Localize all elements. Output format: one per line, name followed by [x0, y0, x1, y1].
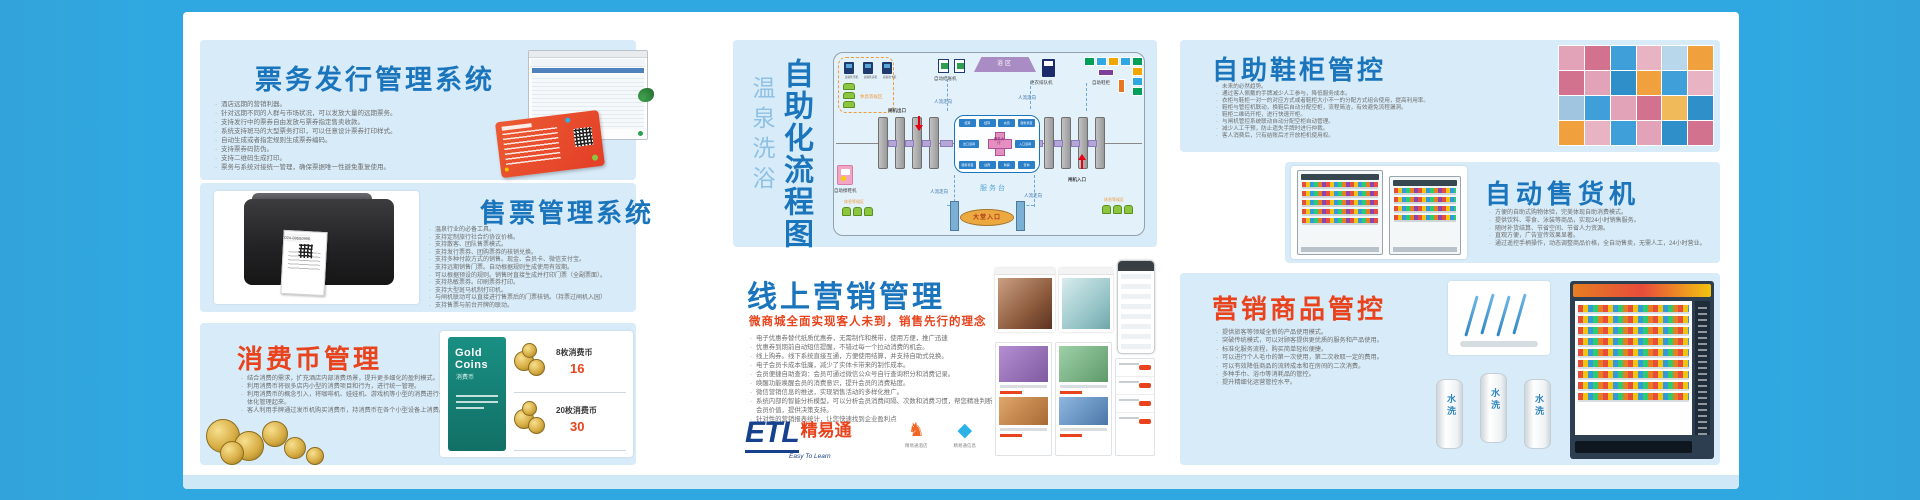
offer-price: 16 [570, 361, 584, 376]
screenshot-table-header [532, 68, 644, 73]
people-flow-label: 人流走向 [1024, 193, 1042, 199]
bullet: 突破传统模式，可以对顾客提供更优质的服务和产品使用。 [1215, 337, 1437, 345]
app-product-card [1055, 342, 1112, 456]
waiting-seats [843, 83, 855, 110]
printer-photo: 024-88600996 [234, 191, 404, 304]
plant-decoration [638, 88, 654, 102]
flow-main-title: 自助化流程图 [773, 58, 817, 250]
app-screenshot-spa [1059, 268, 1113, 332]
service-box: 入口道闸 [1015, 140, 1035, 148]
self-service-machines: 自助售币机 自助售货机 自助领卡机 [844, 62, 897, 79]
bullet: 酒店远期的营销利器。 [214, 100, 514, 109]
locker-tile [1688, 46, 1713, 70]
bullet: 线上购券。线下系统直接互通，方便使用结算，并支持自助式兑换。 [749, 352, 993, 361]
queue-machine-label: 更衣排队机 [1030, 80, 1053, 86]
panel-merch-bullets: 提供旅客等领域全新的产品使用模式。突破传统模式，可以对顾客提供更优质的服务和产品… [1215, 329, 1437, 388]
service-box: 查询 [1018, 161, 1035, 169]
app-screenshot-massage [995, 268, 1055, 332]
bullet: 与闸机管控系统联动自动分配空柜自动管理。 [1215, 119, 1545, 126]
towel-rolls-photo: 水洗 水洗 水洗 [1432, 363, 1564, 461]
qr-code [571, 125, 596, 150]
bullet: 客人利用手牌通过发币机购买消费币，持消费币在各个小型设备上消费。 [240, 407, 445, 415]
product-photo [1059, 397, 1108, 425]
bullet: 通过客人佩戴的手牌减少人工参与，降低服务成本。 [1215, 91, 1545, 98]
entrance-pillar [1016, 201, 1025, 231]
locker-tile [1688, 71, 1713, 95]
service-box: 结算 [959, 119, 976, 127]
locker-tile [1559, 96, 1584, 120]
locker-tile [1637, 71, 1662, 95]
bullet: 鞋柜与管控机联动，换鞋后自动分配空柜，流程简洁，有效避免流程漏洞。 [1215, 105, 1545, 112]
vending-machine [1297, 170, 1383, 255]
locker-tile [1611, 46, 1636, 70]
vending-window [1575, 301, 1692, 435]
bullet: 系统内部的智能分析模型，可以分析会员消费间隔、次数和消费习惯，帮您精准判断会员价… [749, 397, 993, 415]
printer-photo-card: 024-88600996 [214, 191, 419, 304]
merch-vending-photo [1570, 281, 1714, 459]
bullet: 利用消费币的概念引入，将咖啡机、娃娃机、游戏机等小型的消费进行一体化管理起来。 [240, 391, 445, 407]
vending-pickup-slot [1575, 441, 1692, 453]
etl-logo-cn: 精易通 [801, 421, 852, 440]
bullet: 提供饮料、零食、泳装等商品，实现24小时销售服务。 [1488, 218, 1710, 226]
bullet: 利用消费币将很多店内小型的消费项目和行为，进行统一管理。 [240, 383, 445, 391]
bullet: 票务与系统对接统一管理，确保票据唯一性避免重复使用。 [214, 163, 514, 172]
order-row [1116, 359, 1154, 377]
panel-marketing-bullets: 电子优惠券替代纸质优惠券，无需制作和携带，使用方便，推广迅速优惠券到期前自动短信… [749, 334, 993, 424]
product-icon: ♞ [905, 420, 928, 442]
bullet: 结合消费的需求，扩充酒店内部消费场景，提升更多细化的盈利模式。 [240, 375, 445, 383]
poster-canvas: 票务发行管理系统 酒店远期的营销利器。针对远期不同的人群与市场状况，可以发放大量… [183, 12, 1739, 489]
ticket-text-lines [502, 127, 561, 167]
service-box: 购票 [998, 161, 1015, 169]
service-box: 出口道闸 [959, 140, 979, 148]
panel-marketing-title: 线上营销管理 [747, 272, 945, 316]
poster: 票务发行管理系统 酒店远期的营销利器。针对远期不同的人群与市场状况，可以发放大量… [0, 0, 1920, 500]
locker-tile [1585, 121, 1610, 145]
locker-tile [1611, 96, 1636, 120]
panel-vending-bullets: 方便的自助式购物体验，完美体现自助消费模式。提供饮料、零食、泳装等商品，实现24… [1488, 210, 1710, 249]
towel-roll: 水洗 [1524, 379, 1551, 449]
offer-label: 20枚消费币 [556, 405, 597, 416]
toothbrush [1480, 293, 1494, 334]
product-photo [1059, 346, 1108, 382]
bullet: 自动生成或者指定规则生成票券编码。 [214, 136, 514, 145]
panel-vending: 自动售货机 方便的自助式购物体验，完美体现自助消费模式。提供饮料、零食、泳装等商… [1285, 162, 1720, 263]
panel-ticketing-bullets: 酒店远期的营销利器。针对远期不同的人群与市场状况，可以发放大量的远期票务。支持发… [214, 100, 514, 172]
bullet: 减少人工干预，防止遗失手牌时进行仲裁。 [1215, 126, 1545, 133]
bullet: 支持多种付款方式的销售。现金、会员卡、微信支付宝。 [428, 257, 633, 265]
locker-tile [1611, 71, 1636, 95]
service-row-bottom: 服务项目迎宾购票查询 [959, 161, 1035, 169]
lobby-entrance: 大堂入口 [960, 209, 1014, 226]
etl-product: ♞ 精易通酒店 [905, 420, 928, 449]
bullet: 电子优惠券替代纸质优惠券，无需制作和携带，使用方便，推广迅速 [749, 334, 993, 343]
bullet: 微信营销信息的推送，实现销售活动的多样化推广。 [749, 388, 993, 397]
waiting-seats [842, 207, 873, 218]
screenshot-titlebar [529, 51, 647, 58]
vending-machine [1389, 176, 1461, 255]
shoe-shine-label: 自助擦鞋机 [834, 188, 857, 194]
bath-zone: 浴区 [974, 57, 1036, 72]
machine-icon [882, 62, 892, 74]
printer-ticket-phone: 024-88600996 [284, 235, 310, 241]
bullet: 通过遥控手柄操作，动态调整商品价格，全自动售卖，无需人工，24小时营业。 [1488, 241, 1710, 249]
etl-product: ◆ 精易通信息 [954, 420, 977, 449]
locker-tile [1585, 46, 1610, 70]
massage-photo [998, 278, 1052, 329]
towel-roll: 水洗 [1436, 379, 1463, 449]
phone-mockup [1117, 260, 1155, 354]
queue-machine-icon [1042, 59, 1055, 77]
service-row-top: 结算结算充值服务项目 [959, 119, 1035, 127]
gate-entry-arrow [1081, 155, 1083, 169]
locker-tile [1662, 71, 1687, 95]
locker-tile [1688, 96, 1713, 120]
bullet: 标准化服务流程，购买简单轻松便捷。 [1215, 346, 1437, 354]
product-photo [999, 346, 1048, 382]
bullet: 支持票券码防伪。 [214, 145, 514, 154]
service-desk-label: 服务台 [980, 183, 1007, 193]
locker-tile [1559, 121, 1584, 145]
bullet: 温泉行业的必备工具。 [428, 227, 633, 235]
locker-photo [1558, 45, 1714, 146]
service-box: 服务项目 [959, 161, 976, 169]
locker-tile [1688, 121, 1713, 145]
gate-exit-label: 闸机出口 [888, 108, 906, 114]
bullet: 支持热敏票券。印刷票券打印。 [428, 280, 633, 288]
panel-shoe-title: 自助鞋柜管控 [1212, 50, 1386, 87]
self-service-machine: 自助领卡机 [882, 62, 897, 79]
service-hall-box: 结算结算充值服务项目 出口道闸 入口道闸 服务项目迎宾购票查询 服务大厅 [954, 115, 1040, 173]
people-flow-label: 人流走向 [934, 99, 952, 105]
toothbrush [1512, 293, 1526, 334]
waiting-area-label: 休息等候区 [844, 199, 864, 205]
panel-marketing-subtitle: 微商城全面实现客人未到，销售先行的理念 [749, 313, 987, 329]
locker-tile [1662, 96, 1687, 120]
shoe-shine-machine-icon [837, 165, 853, 185]
panel-shoe-cabinet: 自助鞋柜管控 未来的必然趋势。通过客人佩戴的手牌减少人工参与，降低服务成本。衣柜… [1180, 40, 1720, 152]
phone-content [1121, 274, 1151, 349]
bullet: 客人消费后，只有结账后才开放柜机使用权。 [1215, 133, 1545, 140]
locker-tile [1611, 121, 1636, 145]
price-bar [1060, 391, 1082, 394]
service-box: 结算 [979, 119, 996, 127]
locker-tile [1662, 121, 1687, 145]
locker-tile [1585, 96, 1610, 120]
gate-entry-label: 闸机入口 [1068, 177, 1086, 183]
panel-ticket-sales-bullets: 温泉行业的必备工具。支持定制旅行社合约协议价格。支持散客、团队售票模式。支持发行… [428, 227, 633, 311]
order-row [1116, 413, 1154, 431]
etl-logo-text: ETL [745, 416, 799, 453]
bullet: 唤醒功能唤醒会员的消费意识，提升会员的消费粘度。 [749, 379, 993, 388]
canvas-bottom-strip [183, 475, 1739, 489]
gold-card-brand: Gold Coins [455, 347, 506, 371]
waiting-seats [1102, 205, 1133, 216]
panel-shoe-bullets: 未来的必然趋势。通过客人佩戴的手牌减少人工参与，降低服务成本。衣柜与鞋柜一对一的… [1215, 84, 1545, 140]
shoe-lockers-label: 自助鞋柜 [1092, 80, 1110, 86]
coin-offers: 8枚消费币 16 20枚消费币 30 [512, 335, 628, 451]
locker-tile [1637, 121, 1662, 145]
entrance-pillar [950, 201, 959, 231]
panel-merch: 营销商品管控 提供旅客等领域全新的产品使用模式。突破传统模式，可以对顾客提供更优… [1180, 273, 1720, 465]
product-label: 精易通信息 [954, 443, 977, 449]
service-box: 服务项目 [1018, 119, 1035, 127]
offer-label: 8枚消费币 [556, 347, 592, 358]
bullet: 支持散客、团队售票模式。 [428, 242, 633, 250]
checkout-machine-icon [938, 59, 949, 73]
bullet: 方便的自助式购物体验，完美体现自助消费模式。 [1488, 210, 1710, 218]
order-row [1116, 377, 1154, 395]
panel-coins: 消费币管理 结合消费的需求，扩充酒店内部消费场景，提升更多细化的盈利模式。利用消… [200, 323, 636, 465]
people-flow-label: 人流走向 [930, 189, 948, 195]
panel-coins-title: 消费币管理 [237, 339, 382, 376]
phone-header [1118, 261, 1154, 271]
panel-ticketing-title: 票务发行管理系统 [255, 58, 495, 97]
bullet: 与闸机联动可以直接进行售票后的门票核销。（持票过闸机入园） [428, 295, 633, 303]
screenshot-toolbar [531, 59, 645, 67]
locker-tile [1559, 71, 1584, 95]
vending-photo-card [1291, 166, 1467, 259]
service-box: 充值 [998, 119, 1015, 127]
order-row [1116, 395, 1154, 413]
bullet: 可以有效降低商品的流转成本和在房间的二次消费。 [1215, 363, 1437, 371]
checkout-machines [938, 59, 965, 73]
kit-tray [1460, 341, 1538, 347]
toothbrush [1496, 295, 1510, 336]
checkout-machine-label: 自动结账机 [934, 76, 957, 82]
ticket-card [495, 110, 605, 178]
panel-flow-diagram: 温泉洗浴 自助化流程图 自助售币机 自助售货机 [733, 40, 1157, 247]
bullet: 支持远期销售门票。自动根据规则生成使用有效期。 [428, 265, 633, 273]
flow-diagram: 自助售币机 自助售货机 自助领卡机 [833, 52, 1145, 236]
bullet: 支持售票与前台开牌的联动。 [428, 303, 633, 311]
self-service-machine: 自助售货机 [863, 62, 878, 79]
bullet: 可以进行个人毛巾的第一次使用，第二次收取一定的费用。 [1215, 354, 1437, 362]
gate-exit-arrow [918, 116, 920, 130]
coin-offer-row: 8枚消费币 16 [512, 335, 628, 393]
locker-tile [1637, 46, 1662, 70]
spa-photo [1062, 278, 1110, 329]
gate-pillar [1044, 117, 1054, 169]
waiting-area-box: 自助售币机 自助售货机 自助领卡机 [838, 57, 894, 113]
panel-ticket-sales: 024-88600996 售票管理系统 温泉行业的必备工具。支持定制旅行社合约协… [200, 183, 636, 312]
panel-merch-title: 营销商品管控 [1212, 289, 1386, 326]
price-bar [1060, 434, 1082, 437]
etl-logo: ETL精易通 Easy To Learn [745, 416, 852, 460]
vending-control-panel [1695, 301, 1710, 435]
panel-marketing: 线上营销管理 微商城全面实现客人未到，销售先行的理念 电子优惠券替代纸质优惠券，… [733, 258, 1157, 465]
gate-pillar [878, 117, 888, 169]
price-bar [1000, 434, 1022, 437]
panel-ticket-sales-title: 售票管理系统 [480, 193, 654, 230]
self-service-machine: 自助售币机 [844, 62, 859, 79]
bullet: 系统支持斑马的大型票务打印，可以任意设计票券打印样式。 [214, 127, 514, 136]
price-bar [1000, 391, 1022, 394]
printer-ticket: 024-88600996 [280, 230, 327, 296]
panel-coins-bullets: 结合消费的需求，扩充酒店内部消费场景，提升更多细化的盈利模式。利用消费币将很多店… [240, 375, 445, 415]
bullet: 提升精细化运营管控水平。 [1215, 379, 1437, 387]
app-order-list [1115, 358, 1155, 456]
printer-ticket-qr [296, 242, 315, 261]
toothbrush [1464, 295, 1478, 336]
bullet: 会员便捷自助查询：会员可通过微信公众号自行查询积分和消费记录。 [749, 370, 993, 379]
machine-icon [844, 62, 854, 74]
coin-offers-card: Gold Coins 消费币 8枚消费币 16 [440, 331, 633, 457]
machine-icon [863, 62, 873, 74]
waiting-area-label: 休息等候区 [860, 94, 883, 100]
product-label: 精易通酒店 [905, 443, 928, 449]
gold-card-label: 消费币 [456, 372, 506, 381]
service-box: 迎宾 [979, 161, 996, 169]
gold-coin-card: Gold Coins 消费币 [448, 337, 506, 451]
bullet: 未来的必然趋势。 [1215, 84, 1545, 91]
panel-vending-title: 自动售货机 [1485, 174, 1640, 211]
toiletry-kit-photo [1448, 281, 1550, 355]
etl-logo-slogan: Easy To Learn [789, 453, 852, 460]
towel-roll: 水洗 [1480, 373, 1507, 443]
locker-tile [1559, 46, 1584, 70]
waiting-area-label: 休息等候区 [1104, 197, 1124, 203]
screenshot-status-dot [638, 131, 643, 136]
product-photo [999, 397, 1048, 425]
bullet: 优惠券到期前自动短信提醒，不错过每一个拉动消费的机会。 [749, 343, 993, 352]
locker-tile [1637, 96, 1662, 120]
app-product-card [995, 342, 1052, 456]
bullet: 针对远期不同的人群与市场状况，可以发放大量的远期票务。 [214, 109, 514, 118]
offer-price: 30 [570, 419, 584, 434]
coin-offer-row: 20枚消费币 30 [512, 393, 628, 451]
bullet: 衣柜与鞋柜一对一的对应方式或者鞋柜大小不一的分配方式组合使用，提高利用率。 [1215, 98, 1545, 105]
checkout-machine-icon [954, 59, 965, 73]
bullet: 鞋柜二维码开柜，进行快速开柜。 [1215, 112, 1545, 119]
locker-tile [1662, 46, 1687, 70]
people-flow-label: 人流走向 [1018, 95, 1036, 101]
product-icon: ◆ [954, 420, 977, 442]
bullet: 支持发行中的票券自由发放与票券指定售卖收款。 [214, 118, 514, 127]
bullet: 电子会员卡成本低廉，减少了实体卡带来的制作成本。 [749, 361, 993, 370]
bullet: 支持二维码生成打印。 [214, 154, 514, 163]
panel-ticketing: 票务发行管理系统 酒店远期的营销利器。针对远期不同的人群与市场状况，可以发放大量… [200, 40, 636, 180]
service-hall-cross: 服务大厅 [988, 132, 1010, 154]
locker-tile [1585, 71, 1610, 95]
